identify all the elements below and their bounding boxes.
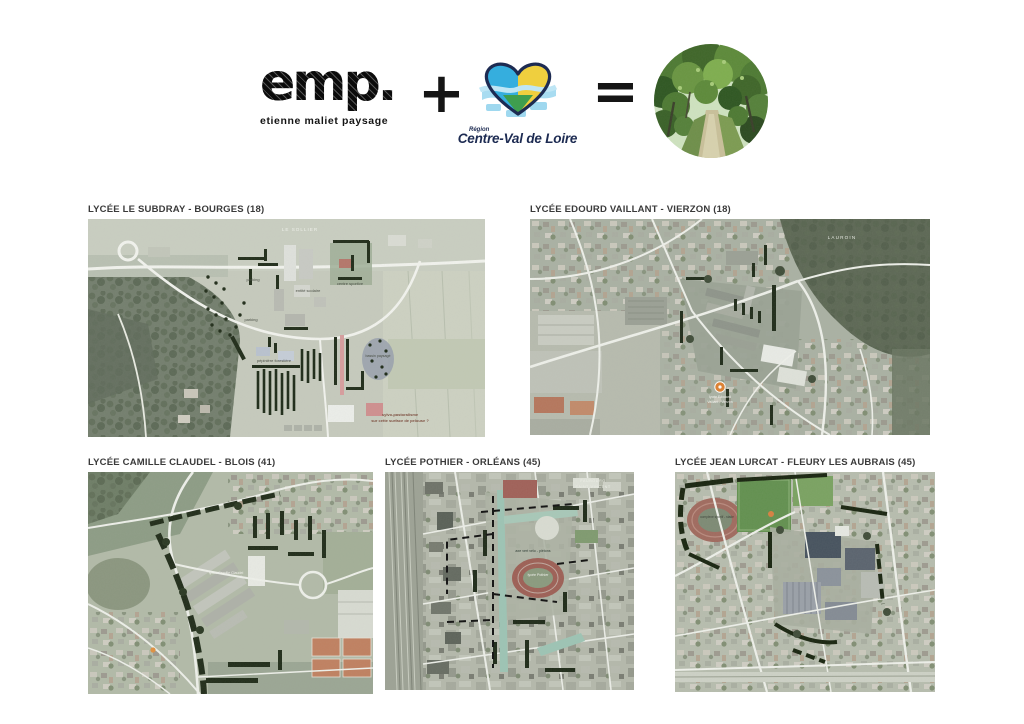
emp-wordmark: emp.	[260, 56, 420, 111]
emp-tagline: etienne maliet paysage	[260, 115, 420, 127]
map-orleans: FAUBOURG SAINT-VINCENT axe vert vélo - p…	[385, 472, 634, 690]
equals-sign: =	[592, 64, 639, 120]
map-title-vierzon: LYCÉE EDOURD VAILLANT - VIERZON (18)	[530, 204, 731, 215]
map-blois: lycée Camille Claudel	[88, 472, 373, 694]
region-heart-icon	[476, 56, 560, 122]
map-vierzon: lycée Edouard Vaillant - Vierzon LAUROIN	[530, 219, 930, 435]
map-title-lurcat: LYCÉE JEAN LURCAT - FLEURY LES AUBRAIS (…	[675, 457, 916, 468]
region-name: Centre-Val de Loire	[455, 131, 580, 146]
emp-logo: emp. etienne maliet paysage	[260, 56, 420, 127]
map-title-blois: LYCÉE CAMILLE CLAUDEL - BLOIS (41)	[88, 457, 275, 468]
map-title-orleans: LYCÉE POTHIER - ORLÉANS (45)	[385, 457, 541, 468]
region-logo: Région Centre-Val de Loire	[455, 56, 580, 146]
map-subdray: LE SOLLIER parking entité scolaire centr…	[88, 219, 485, 437]
forest-path-photo	[654, 44, 768, 158]
map-lurcat: complexe sportif - stade	[675, 472, 935, 692]
map-title-subdray: LYCÉE LE SUBDRAY - BOURGES (18)	[88, 204, 264, 215]
